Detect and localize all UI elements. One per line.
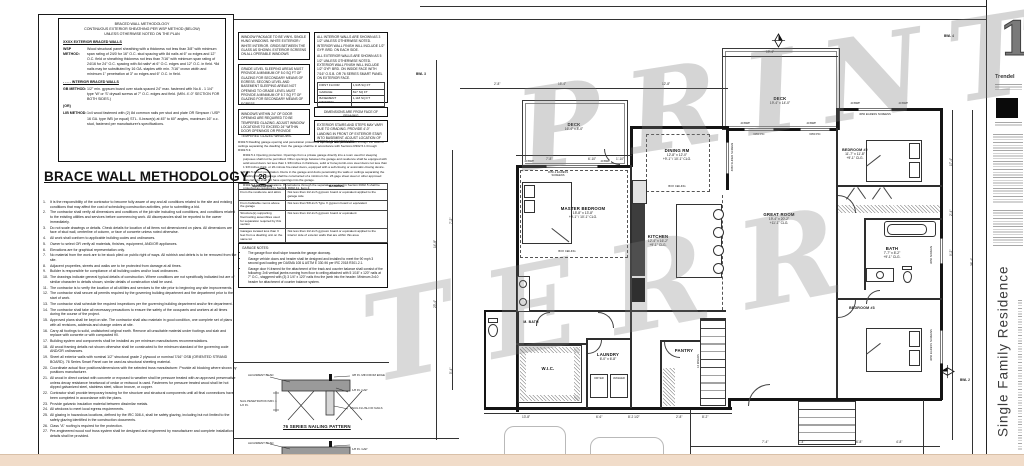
dim-label: 13'-8" [522, 415, 530, 419]
stool [713, 263, 724, 274]
pantry-shelf [663, 368, 675, 406]
room-label-deck-right: DECK 19'-4" x 14'-0" [752, 96, 808, 105]
dim-label: 7'-8" [546, 157, 552, 161]
methodology-title-3: UNLESS OTHERWISE NOTED ON THE PLAN [63, 32, 221, 37]
material-cell: Not less than 1/2-inch gypsum board or e… [286, 211, 388, 229]
range-appliance [632, 278, 645, 302]
dim-label: 36'-4" [970, 258, 974, 266]
bifold-door [872, 188, 881, 200]
area-value: 1,118 SQ FT [351, 96, 385, 106]
dim-label: 6'-10" [588, 157, 596, 161]
garage-notes-title: GARAGE NOTES: [242, 246, 384, 250]
builder-address-lines [995, 84, 1022, 92]
note-item: Sheet all exterior walls with nominal 1/… [50, 355, 238, 364]
dim-label: 14'-8" [433, 240, 437, 248]
dim-label: 2'-4" [949, 210, 953, 216]
note-item: Pre-engineered wood roof truss system sh… [50, 429, 238, 438]
note-item: All wood framing details not shown other… [50, 345, 238, 354]
note-item: Contractor shall provide temporary braci… [50, 391, 238, 400]
alignment-bead-label-2: ALIGNMENT BEAD [248, 441, 274, 445]
detail-separator-line-2 [233, 438, 459, 439]
note-item: Building system and components shall be … [50, 339, 238, 344]
sink [519, 280, 527, 288]
dim-label: 7'-4" [762, 440, 768, 444]
toilet-tank [488, 318, 498, 323]
dim-label: 2'-8" [676, 415, 682, 419]
exterior-walls-note: ALL EXTERIOR WALLS ARE SHOWN AS 5 1/2" U… [317, 54, 385, 80]
window-label: 3050 EGRESS SCREENS [858, 113, 892, 116]
note-item: The garage floor shall slope towards the… [248, 251, 384, 255]
dim-label: 6'-8" [856, 440, 862, 444]
dim-label: 15'-4" [558, 82, 566, 86]
dim-label: 23'-4" [433, 300, 437, 308]
note-item: Adjacent properties, streets and walks a… [50, 264, 238, 269]
material-cell: Not less than 1/2-inch gypsum board or e… [286, 190, 388, 200]
bwp-tag: 40 BWP [524, 160, 535, 163]
r302-intro: R302.5 Dwelling garage opening and penet… [238, 141, 388, 153]
dim-label: 7'-2" [449, 218, 453, 224]
general-notes-list: It is the responsibility of the contract… [42, 200, 238, 452]
bathtub-inner [887, 224, 927, 235]
note-item: Provide galvanic insulation material bet… [50, 402, 238, 407]
note-item: Do not scale drawings or details. Check … [50, 226, 238, 235]
toilet [488, 324, 498, 337]
window-package-note: WINDOW PACKAGE TO BE VINYL SINGLE HUNG W… [238, 32, 310, 60]
room-label-bedroom2: BEDROOM #2 11'-7" x 11'-8" +9'-1" CLG. [838, 148, 872, 160]
garage-notes-box: GARAGE NOTES: The garage floor shall slo… [238, 243, 388, 288]
sink [876, 271, 884, 279]
box-ceiling-label: BOX CEILING [552, 250, 582, 253]
box-ceiling-dining [646, 134, 710, 192]
room-label-kitchen: KITCHEN 12'-4" x 16'-2" +9'-1" CLG. [638, 234, 678, 247]
bifold-door [883, 187, 892, 199]
separation-cell: Garages located less than 3 feet from a … [239, 229, 286, 243]
bwp-tag: 40 BWP [898, 102, 909, 105]
note-item: Approved plans shall be kept on site. Th… [50, 318, 238, 327]
dim-label: 1'-10" [616, 157, 624, 161]
lib-method-label: LIB METHOD: [63, 111, 87, 126]
pillow [524, 185, 535, 198]
nailing-pattern-diagram [230, 366, 405, 428]
braced-wall-methodology-box: BRACED WALL METHODOLOGY CONTINUOUS EXTER… [58, 18, 226, 162]
tempered-glazing-note: WINDOWS WITHIN 24" OF DOOR OPENING ARE R… [238, 109, 310, 135]
bwl-marker: BWL 2 [960, 378, 970, 382]
detail-separator-line [233, 362, 389, 363]
note-item: The contractor shall verify all dimensio… [50, 210, 238, 224]
dim-label: 9'-2" [949, 250, 953, 256]
sink [519, 298, 527, 306]
disclaimer-text-lines [993, 134, 1023, 204]
note-item: Owner to select OR verify all materials,… [50, 242, 238, 247]
drawing-sheet: BRACED WALL METHODOLOGY CONTINUOUS EXTER… [0, 0, 1024, 466]
pillow [909, 143, 920, 159]
or-row: (OR) [63, 104, 221, 109]
room-label-pantry: PANTRY [666, 348, 702, 353]
deck-right [722, 48, 840, 130]
room-label-wic: W.I.C. [532, 366, 564, 371]
title-block-divider [986, 0, 987, 455]
room-label-master-bath: M. BATH [516, 320, 546, 324]
closet-shelf [520, 395, 580, 401]
dimensions-note: DIMENSIONS ARE FROM FACE OF FRAMING [314, 107, 388, 117]
qr-logo-block [996, 98, 1018, 118]
dim-label: 19'-4" [766, 50, 774, 54]
wsp-method-text: Wood structural panel sheathing with a t… [87, 47, 221, 77]
separation-cell: From the residence and attics [239, 190, 286, 200]
note-item: Carry all footings to solid, undisturbed… [50, 329, 238, 338]
contact-lines [995, 122, 1022, 127]
wall-finish-note-box: ALL INTERIOR WALLS ARE SHOWN AS 3 1/2" U… [314, 32, 388, 103]
lib-method-row: LIB METHOD: 1x4 wood fastened with (2) 8… [63, 111, 221, 126]
pillow [524, 200, 535, 213]
closet-shelf [520, 347, 580, 353]
note-item: All windows to meet local egress require… [50, 407, 238, 412]
sheet-inner-border [232, 19, 986, 20]
r302-p1: R302.5.1 Opening protection. Openings fr… [238, 154, 388, 170]
numbered-note-lines [993, 210, 1023, 246]
dryer-label: DRYER [590, 377, 608, 380]
note-item: Builder is responsible for compliance of… [50, 269, 238, 274]
note-item: The contractor shall secure all permits … [50, 291, 238, 300]
secondary-vertical-text [1018, 300, 1022, 450]
note-item: All wood in direct contact with concrete… [50, 376, 238, 390]
r302-p2: R302.5.2 Duct penetration. Ducts in the … [238, 171, 388, 183]
note-item: The contractor shall schedule the requir… [50, 302, 238, 307]
pillow [909, 162, 920, 178]
bwl-marker: BWL 4 [944, 34, 954, 38]
dim-label: 6'-6" [596, 415, 602, 419]
separation-table: SEPARATION MATERIAL From the residence a… [238, 183, 388, 243]
stair-riser-label: 14 RISERS [697, 354, 700, 368]
material-cell: Not less than 5/8-inch Type X gypsum boa… [286, 200, 388, 210]
note-item: Elevations are for graphical representat… [50, 248, 238, 253]
area-label: BASEMENT FINISHED [318, 96, 352, 106]
bifold-door [857, 187, 866, 199]
sheet-title-vertical: Single Family Residence [992, 248, 1014, 455]
window-label: 3050-2 EGRESS SCREENS [544, 171, 572, 178]
pillow [909, 350, 920, 366]
bwp-tag: 40 BWP [740, 122, 751, 125]
toilet-tank [902, 266, 912, 270]
note-item: The drawings indicate general typical de… [50, 275, 238, 284]
note-item: Class "A" roofing is required for fire p… [50, 424, 238, 429]
dim-label: 8'-2" [702, 415, 708, 419]
note-item: Garage door H-framed for the attachment … [248, 267, 384, 284]
dim-label: 2'-8" [494, 82, 500, 86]
window-label: 4050 SLIDER SCREEN [731, 140, 734, 174]
builder-name: Trendel [995, 74, 1015, 80]
room-label-master: MASTER BEDROOM 15'-8" x 13'-8" +9'-1" / … [548, 206, 618, 219]
north-arrow-icon [771, 33, 786, 48]
closet-shelf [574, 347, 580, 401]
washer-label: WASHER [610, 377, 628, 380]
gb-method-label: GB METHOD: [63, 87, 87, 102]
gap-label-2: 1/8 IN. GAP [352, 447, 367, 451]
window-label: 6050 PIC [746, 133, 772, 136]
window-label: 6050 PIC [802, 133, 828, 136]
stairs [700, 320, 726, 406]
note-item: The contractor is to verify the location… [50, 286, 238, 291]
builder-logo: 1 [999, 16, 1024, 63]
note-item: All work shall conform to applicable bui… [50, 236, 238, 241]
separation-cell: Structure(s) supporting floor/ceiling as… [239, 211, 286, 229]
room-label-great-room: GREAT ROOM 19'-4" x 20'-2" +11'-1" CLG. [744, 212, 814, 225]
gb-method-text: 1/2" min. gypsum board over studs spaced… [87, 87, 221, 102]
room-label-dining: DINING RM 12'-8" x 12'-0" +9'-1" / 10'-1… [652, 148, 702, 161]
interior-walls-note: ALL INTERIOR WALLS ARE SHOWN AS 3 1/2" U… [317, 35, 385, 52]
closet-shelf [520, 347, 526, 401]
stool [713, 209, 724, 220]
room-label-laundry: LAUNDRY 6'-0" x 6'-8" [586, 352, 630, 361]
window-label: 3050 SCREEN [930, 242, 933, 268]
bwl-marker: BWL 3 [416, 72, 426, 76]
wsp-method-row: WSP METHOD: Wood structural panel sheath… [63, 47, 221, 77]
porch-steps [798, 401, 856, 445]
refrigerator [632, 180, 647, 204]
note-item: All glazing in hazardous locations, defi… [50, 413, 238, 422]
garage-notes-list: The garage floor shall slope towards the… [242, 251, 384, 284]
dim-label: 17'-4" [949, 158, 953, 166]
dim-label: 8'-2 1/2" [628, 415, 640, 419]
or-label: (OR) [63, 104, 87, 109]
dim-label: 4'-8" [896, 440, 902, 444]
note-item: Coordinate actual floor positions/dimens… [50, 366, 238, 375]
bwp-tag: 40 BWP [806, 122, 817, 125]
pillow [909, 331, 920, 347]
window-label: 3050 EGRESS SCREENS [930, 328, 933, 362]
note-item: No material from the work are to be stoc… [50, 253, 238, 262]
box-ceiling-label: BOX CEILING [662, 185, 692, 188]
interior-braced-heading: - - - - INTERIOR BRACED WALLS [63, 80, 221, 85]
exterior-stairs-note: EXTERIOR STAIRS AND STEPS MAY VARY DUE T… [314, 120, 388, 142]
note-item: It is the responsibility of the contract… [50, 200, 238, 209]
lib-method-text: 1x4 wood fastened with (2) 8d common nai… [87, 111, 221, 126]
toilet [903, 271, 912, 283]
dim-label: 1'-4" [798, 440, 804, 444]
note-item: The contractor shall take all necessary … [50, 308, 238, 317]
bwp-tag: 40 BWP [600, 160, 611, 163]
dim-label: 5'-4" [449, 368, 453, 374]
separation-cell: From habitable rooms above the garage [239, 200, 286, 210]
room-label-bath: BATH 7'-7" x 8'-2" +9'-1" CLG. [872, 246, 912, 259]
stool [713, 227, 724, 238]
egress-glazing-note: GRADE LEVEL SLEEPING AREAS MUST PROVIDE … [238, 64, 310, 105]
stool [713, 245, 724, 256]
material-cell: Not less than 1/2-inch gypsum board or e… [286, 229, 388, 243]
dim-label: 12'-8" [662, 82, 670, 86]
exterior-braced-heading: XXXX EXTERIOR BRACED WALLS [63, 40, 221, 45]
sheet-top-border [420, 6, 986, 7]
bwp-tag: 40 BWP [850, 102, 861, 105]
brace-wall-title-row: BRACE WALL METHODOLOGY 20 [44, 168, 230, 185]
note-item: Garage vehicle doors and header shall be… [248, 257, 384, 266]
room-label-bedroom3: BEDROOM #3 [842, 306, 882, 310]
gb-method-row: GB METHOD: 1/2" min. gypsum board over s… [63, 87, 221, 102]
wsp-method-label: WSP METHOD: [63, 47, 87, 77]
page-title: BRACE WALL METHODOLOGY [44, 169, 249, 184]
room-label-deck-left: DECK 16'-4" x 8'-0" [546, 122, 602, 131]
desk-background-strip [0, 454, 1024, 466]
